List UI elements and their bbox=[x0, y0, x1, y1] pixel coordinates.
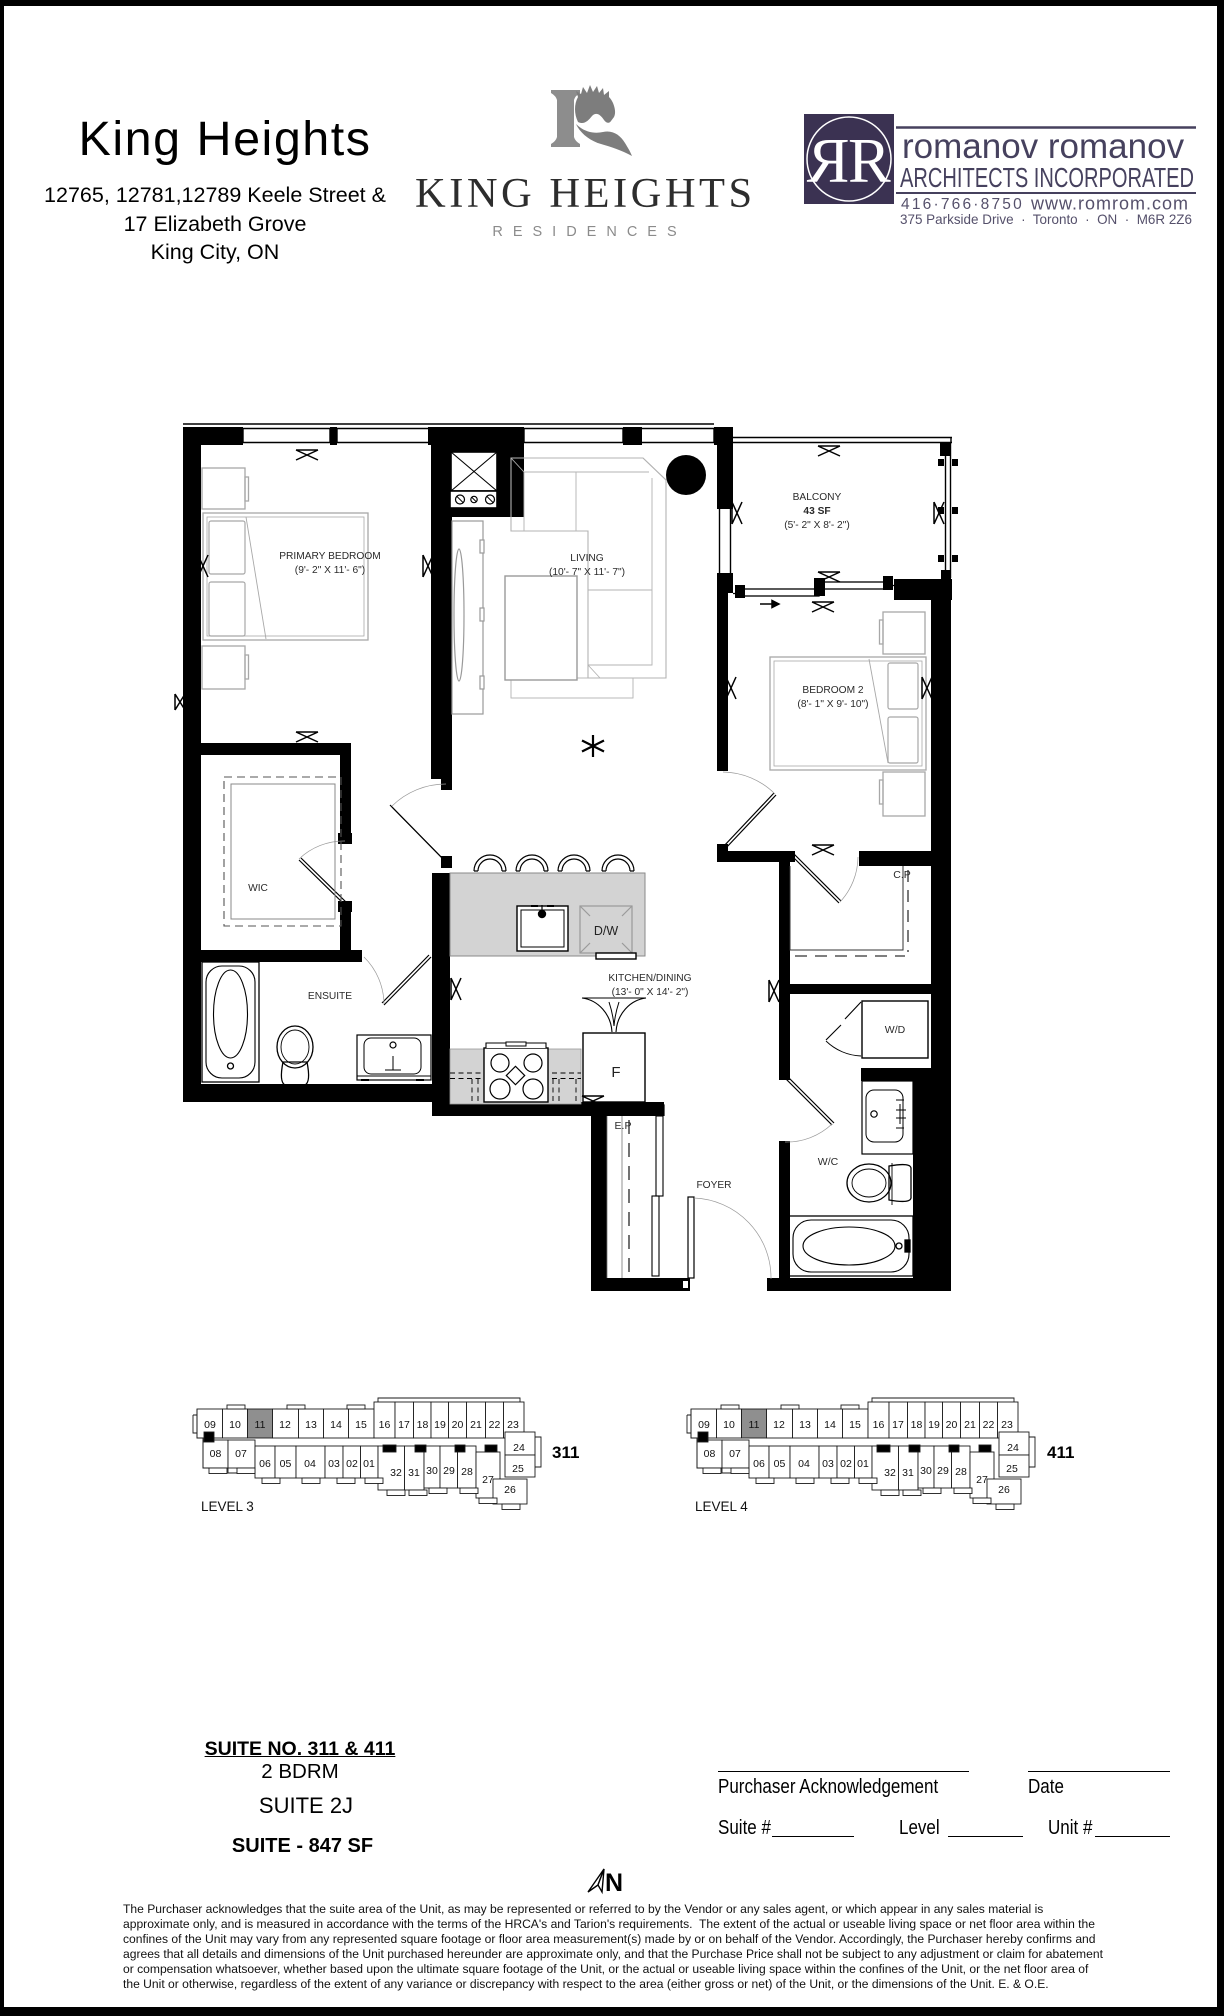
svg-text:C.P: C.P bbox=[893, 869, 911, 881]
svg-text:311: 311 bbox=[552, 1443, 579, 1462]
svg-text:31: 31 bbox=[408, 1467, 420, 1479]
svg-text:32: 32 bbox=[884, 1467, 896, 1479]
svg-text:16: 16 bbox=[873, 1419, 885, 1431]
svg-text:26: 26 bbox=[998, 1484, 1010, 1496]
svg-text:(13'- 0" X 14'- 2"): (13'- 0" X 14'- 2") bbox=[612, 987, 689, 998]
svg-text:30: 30 bbox=[426, 1465, 438, 1477]
svg-text:FOYER: FOYER bbox=[696, 1180, 731, 1191]
svg-text:20: 20 bbox=[946, 1419, 958, 1431]
svg-text:03: 03 bbox=[328, 1458, 340, 1470]
svg-text:W/C: W/C bbox=[818, 1156, 839, 1168]
svg-text:06: 06 bbox=[753, 1458, 765, 1470]
svg-text:27: 27 bbox=[976, 1474, 988, 1486]
svg-text:(8'- 1" X 9'- 10"): (8'- 1" X 9'- 10") bbox=[797, 699, 868, 710]
svg-text:F: F bbox=[611, 1064, 620, 1081]
svg-text:29: 29 bbox=[937, 1465, 949, 1477]
svg-text:23: 23 bbox=[1001, 1419, 1013, 1431]
svg-text:04: 04 bbox=[798, 1458, 810, 1470]
svg-text:43 SF: 43 SF bbox=[803, 506, 830, 517]
svg-text:21: 21 bbox=[964, 1419, 976, 1431]
svg-text:27: 27 bbox=[482, 1474, 494, 1486]
svg-text:05: 05 bbox=[280, 1458, 292, 1470]
svg-text:19: 19 bbox=[928, 1419, 940, 1431]
svg-text:10: 10 bbox=[229, 1419, 241, 1431]
svg-text:02: 02 bbox=[840, 1458, 852, 1470]
svg-text:31: 31 bbox=[902, 1467, 914, 1479]
svg-text:411: 411 bbox=[1047, 1443, 1074, 1462]
svg-text:10: 10 bbox=[723, 1419, 735, 1431]
svg-text:12: 12 bbox=[279, 1419, 291, 1431]
svg-text:09: 09 bbox=[204, 1419, 216, 1431]
svg-text:32: 32 bbox=[390, 1467, 402, 1479]
svg-text:22: 22 bbox=[489, 1419, 501, 1431]
svg-text:26: 26 bbox=[504, 1484, 516, 1496]
svg-text:LIVING: LIVING bbox=[570, 553, 603, 564]
svg-text:24: 24 bbox=[513, 1442, 525, 1454]
svg-text:07: 07 bbox=[729, 1448, 741, 1460]
svg-text:21: 21 bbox=[470, 1419, 482, 1431]
svg-text:BEDROOM 2: BEDROOM 2 bbox=[802, 685, 863, 696]
svg-text:18: 18 bbox=[417, 1419, 429, 1431]
svg-text:09: 09 bbox=[698, 1419, 710, 1431]
svg-text:(5'- 2" X 8'- 2"): (5'- 2" X 8'- 2") bbox=[784, 520, 849, 531]
svg-text:14: 14 bbox=[824, 1419, 836, 1431]
svg-text:(9'- 2" X 11'- 6"): (9'- 2" X 11'- 6") bbox=[295, 565, 365, 576]
svg-text:13: 13 bbox=[799, 1419, 811, 1431]
svg-text:14: 14 bbox=[330, 1419, 342, 1431]
svg-text:22: 22 bbox=[983, 1419, 995, 1431]
svg-text:11: 11 bbox=[749, 1419, 760, 1431]
svg-text:24: 24 bbox=[1007, 1442, 1019, 1454]
svg-text:WIC: WIC bbox=[248, 883, 268, 894]
svg-text:20: 20 bbox=[452, 1419, 464, 1431]
svg-text:17: 17 bbox=[892, 1419, 904, 1431]
svg-text:08: 08 bbox=[704, 1448, 716, 1460]
svg-text:30: 30 bbox=[920, 1465, 932, 1477]
svg-text:28: 28 bbox=[955, 1466, 967, 1478]
svg-text:04: 04 bbox=[304, 1458, 316, 1470]
svg-text:01: 01 bbox=[857, 1458, 869, 1470]
svg-text:25: 25 bbox=[1006, 1463, 1018, 1475]
svg-text:03: 03 bbox=[822, 1458, 834, 1470]
svg-text:11: 11 bbox=[255, 1419, 266, 1431]
svg-text:D/W: D/W bbox=[594, 924, 619, 938]
svg-text:ENSUITE: ENSUITE bbox=[308, 991, 352, 1002]
svg-text:E.P: E.P bbox=[615, 1120, 632, 1132]
svg-text:23: 23 bbox=[507, 1419, 519, 1431]
svg-text:18: 18 bbox=[911, 1419, 923, 1431]
svg-text:29: 29 bbox=[443, 1465, 455, 1477]
svg-text:16: 16 bbox=[379, 1419, 391, 1431]
svg-text:02: 02 bbox=[346, 1458, 358, 1470]
svg-text:PRIMARY BEDROOM: PRIMARY BEDROOM bbox=[279, 551, 381, 562]
svg-text:BALCONY: BALCONY bbox=[793, 492, 842, 503]
svg-text:(10'- 7" X 11'- 7"): (10'- 7" X 11'- 7") bbox=[549, 567, 625, 578]
svg-text:07: 07 bbox=[235, 1448, 247, 1460]
svg-text:13: 13 bbox=[305, 1419, 317, 1431]
svg-text:N: N bbox=[605, 1869, 623, 1897]
svg-text:28: 28 bbox=[461, 1466, 473, 1478]
svg-text:01: 01 bbox=[363, 1458, 375, 1470]
svg-text:17: 17 bbox=[398, 1419, 410, 1431]
svg-text:LEVEL 4: LEVEL 4 bbox=[695, 1499, 748, 1514]
svg-text:12: 12 bbox=[773, 1419, 785, 1431]
svg-text:15: 15 bbox=[849, 1419, 861, 1431]
svg-text:KITCHEN/DINING: KITCHEN/DINING bbox=[608, 973, 691, 984]
svg-text:15: 15 bbox=[355, 1419, 367, 1431]
svg-text:08: 08 bbox=[210, 1448, 222, 1460]
svg-text:06: 06 bbox=[259, 1458, 271, 1470]
svg-text:W/D: W/D bbox=[885, 1024, 906, 1036]
svg-text:LEVEL 3: LEVEL 3 bbox=[201, 1499, 254, 1514]
svg-text:19: 19 bbox=[434, 1419, 446, 1431]
svg-text:05: 05 bbox=[774, 1458, 786, 1470]
svg-text:25: 25 bbox=[512, 1463, 524, 1475]
